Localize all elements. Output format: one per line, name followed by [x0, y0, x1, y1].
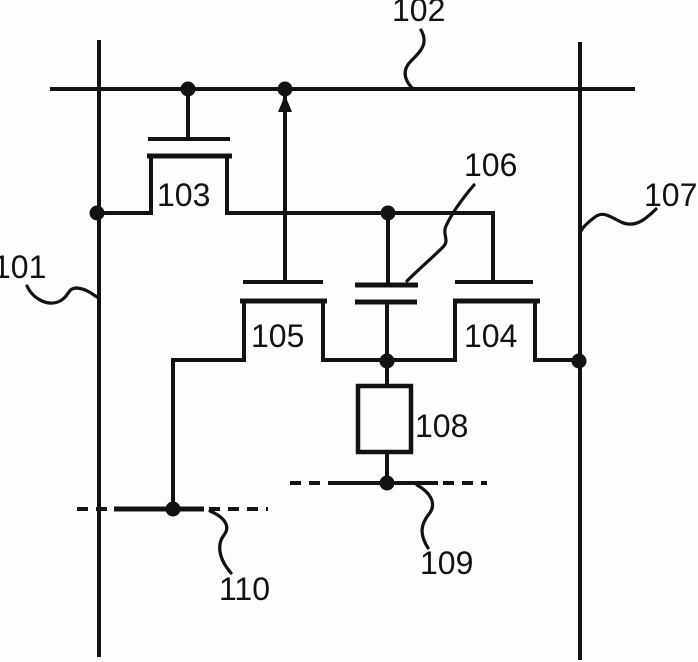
junction-dot: [90, 206, 105, 221]
junction-dot: [181, 82, 196, 97]
junction-dot: [381, 206, 396, 221]
ref-label-110: 110: [219, 571, 270, 607]
schematic-svg: 101102103104105106107108109110: [0, 0, 698, 662]
ref-label-107: 107: [644, 177, 697, 213]
element-box-108: [358, 386, 411, 452]
junction-dot: [380, 354, 395, 369]
patent-figure: 101102103104105106107108109110: [0, 0, 698, 662]
ref-label-101: 101: [0, 249, 46, 285]
leader-102: [405, 30, 424, 88]
ref-label-103: 103: [157, 177, 210, 213]
ref-label-102: 102: [392, 0, 445, 28]
ref-label-106: 106: [464, 147, 517, 183]
ref-label-109: 109: [420, 545, 473, 581]
up-arrowhead: [278, 95, 292, 112]
ref-label-108: 108: [415, 408, 468, 444]
junction-dot: [380, 476, 395, 491]
leader-110: [210, 511, 231, 573]
junction-dot: [166, 502, 181, 517]
ref-label-105: 105: [251, 318, 304, 354]
leader-106: [407, 185, 474, 281]
ref-label-104: 104: [464, 318, 517, 354]
junction-dot: [572, 354, 587, 369]
leader-101: [27, 286, 97, 303]
leader-109: [417, 485, 433, 548]
junction-dot: [278, 82, 293, 97]
